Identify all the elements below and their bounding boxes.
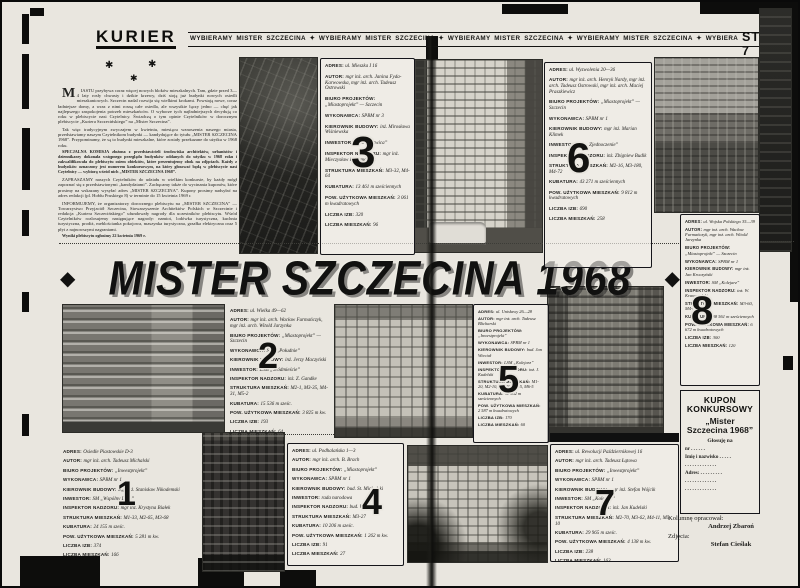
spec-value: ul. Wojska Polskiego 35—39 (703, 219, 755, 224)
photo-strip-right (759, 8, 792, 252)
spec-line: AUTOR: mgr inż. arch. Henryk Nardy, mgr … (549, 77, 647, 95)
spec-value: SPBM nr 1 (718, 259, 738, 264)
spec-line: AUTOR: mgr inż. arch. Tadeusz Łątowa (555, 458, 674, 465)
spec-value: mgr inż. arch. Tadeusz Łątowa (575, 459, 636, 464)
intro-paragraph: INFORMUJEMY, że organizatorzy dorocznego… (58, 201, 237, 232)
edge-mark (783, 356, 793, 370)
spec-label: LICZBA MIESZKAŃ: (549, 216, 597, 221)
spec-value: 13 461 m sześciennych (356, 185, 402, 190)
spec-label: POW. UŻYTKOWA MIESZKAŃ: (555, 539, 627, 544)
spec-label: WYKONAWCA: (685, 259, 718, 264)
spec-label: KIEROWNIK BUDOWY: (63, 487, 118, 492)
spec-label: INWESTOR: (685, 280, 712, 285)
spec-label: LICZBA MIESZKAŃ: (325, 222, 373, 227)
drop-cap: M (58, 88, 75, 99)
building-spec-block-6: 6 ADRES: ul. Wyzwolenia 20—36AUTOR: mgr … (544, 62, 652, 268)
spec-lines: ADRES: ul. Podhalańska 1—3AUTOR: mgr inż… (292, 448, 399, 558)
spec-value: ul. Mieszka I 16 (345, 64, 377, 69)
header-slogan: WYBIERAMY MISTER SZCZECINA ✦ WYBIERAMY M… (190, 35, 738, 45)
spec-value: 163 (603, 559, 611, 564)
spec-line: ADRES: ul. Wielka 49—62 (230, 308, 329, 315)
spec-line: LICZBA IZB: 690 (549, 206, 647, 213)
coupon-address-line: Adres: . . . . . . . . . (685, 471, 755, 476)
photo-building-5 (334, 304, 473, 438)
spec-value: 10 206 m sześc. (323, 524, 354, 529)
spec-value: SPBM nr 1 (510, 340, 530, 345)
spec-label: INSPEKTOR NADZORU: (63, 505, 121, 510)
spec-label: AUTOR: (549, 77, 569, 82)
spec-line: POW. UŻYTKOWA MIESZKAŃ: 5 281 m kw. (63, 534, 201, 541)
spec-line: WYKONAWCA: SPBM nr 1 (478, 340, 544, 345)
photo-building-8 (654, 57, 759, 213)
spec-label: LICZBA MIESZKAŃ: (478, 422, 521, 427)
coupon-name-line: Imię i nazwisko . . . . . (685, 455, 755, 460)
spec-label: INWESTOR: (555, 496, 584, 501)
spec-label: POW. UŻYTKOWA MIESZKAŃ: (63, 534, 135, 539)
spec-label: WYKONAWCA: (555, 477, 592, 482)
spec-value: 2 587 m kwadratowych (478, 408, 519, 413)
spec-value: rada narodowa (321, 496, 352, 501)
spec-line: ADRES: ul. Wyzwolenia 20—36 (549, 67, 647, 74)
spec-label: BIURO PROJEKTÓW: (555, 468, 607, 473)
edge-mark (22, 414, 29, 436)
spec-value: 374 (94, 544, 102, 549)
spec-value: Osiedle Piastowskie D-3 (83, 450, 132, 455)
spec-label: STRUKTURA MIESZKAŃ: (230, 385, 290, 390)
spec-label: BIURO PROJEKTÓW: (325, 96, 375, 101)
contest-number: 7 (595, 485, 615, 521)
spec-line: KUBATURA: 43 271 m sześciennych (549, 179, 647, 186)
edge-mark (22, 54, 29, 109)
spec-line: POW. UŻYTKOWA MIESZKAŃ: 9 812 m kwadrato… (549, 190, 647, 203)
contest-number: 5 (498, 361, 519, 399)
spec-line: KUBATURA: 15 536 m sześc. (230, 401, 329, 408)
spec-value: mgr inż. Stefan Wójcik (610, 488, 655, 493)
spec-label: POW. UŻYTKOWA MIESZKAŃ: (230, 410, 302, 415)
spec-label: LICZBA MIESZKAŃ: (63, 552, 111, 557)
spec-label: POW. UŻYTKOWA MIESZKAŃ: (325, 195, 397, 200)
spec-label: INSPEKTOR NADZORU: (230, 376, 288, 381)
spec-line: LICZBA MIESZKAŃ: 27 (292, 551, 399, 558)
spec-value: 38 561 m sześciennych (713, 314, 754, 319)
spec-value: 258 (597, 217, 605, 222)
spec-line: ADRES: ul. Wojska Polskiego 35—39 (685, 219, 755, 224)
spec-line: LICZBA IZB: 238 (555, 549, 674, 556)
spec-label: LICZBA IZB: (230, 419, 261, 424)
building-spec-block-4: 4 ADRES: ul. Podhalańska 1—3AUTOR: mgr i… (287, 443, 404, 566)
spec-lines: ADRES: ul. Wyzwolenia 20—36AUTOR: mgr in… (549, 67, 647, 223)
spec-value: mgr inż. arch. B. Brach (312, 458, 359, 463)
spec-label: LICZBA MIESZKAŃ: (292, 551, 340, 556)
spec-value: ul. Podhalańska 1—3 (312, 449, 355, 454)
spec-line: WYKONAWCA: SPB „Południe” (230, 348, 329, 355)
spec-line: LICZBA IZB: 320 (325, 212, 410, 219)
spec-line: LICZBA MIESZKAŃ: 166 (63, 552, 201, 559)
spec-label: LICZBA IZB: (292, 542, 323, 547)
spec-value: inż. Zbigniew Budik (607, 154, 647, 159)
spec-label: AUTOR: (63, 458, 83, 463)
coupon-number-line: nr . . . . . . (685, 447, 755, 452)
spec-label: ADRES: (230, 308, 250, 313)
spec-label: LICZBA IZB: (63, 543, 94, 548)
spec-label: LICZBA IZB: (555, 549, 586, 554)
spec-value: 5 281 m kw. (135, 535, 159, 540)
contest-number: 1 (117, 477, 136, 511)
spec-line: AUTOR: mgr inż. arch. Tadeusz Michalski (63, 458, 201, 465)
spec-label: ADRES: (292, 448, 312, 453)
spec-value: 300 (713, 335, 720, 340)
spec-line: WYKONAWCA: SPBM nr 1 (685, 259, 755, 264)
spec-value: 320 (356, 213, 364, 218)
spec-line: BIURO PROJEKTÓW: „Miastoprojekt” — Szcze… (685, 245, 755, 256)
spec-value: „Inwestprojekt” (115, 469, 148, 474)
spec-label: ADRES: (63, 449, 83, 454)
header-rule-top (188, 32, 789, 33)
spec-label: LICZBA IZB: (549, 206, 580, 211)
contest-number: 4 (362, 484, 382, 520)
spec-label: KIEROWNIK BUDOWY: (292, 486, 347, 491)
spec-line: LICZBA MIESZKAŃ: 60 (478, 422, 544, 427)
building-spec-block-1: 1 ADRES: Osiedle Piastowskie D-3AUTOR: m… (59, 445, 205, 566)
spec-value: inż. Z. Gandke (288, 377, 317, 382)
spec-value: „Miastoprojekt” — Szczecin (325, 103, 382, 108)
spec-line: BIURO PROJEKTÓW: „Miastoprojekt” — Szcze… (549, 99, 647, 112)
spec-label: ADRES: (549, 67, 569, 72)
spec-line: BIURO PROJEKTÓW: „Miastoprojekt” — Szcze… (325, 96, 410, 109)
spec-line: LICZBA MIESZKAŃ: 258 (549, 216, 647, 223)
spec-value: ul. Wyzwolenia 20—36 (569, 68, 615, 73)
spec-line: INWESTOR: SM „Zjednoczenie” (549, 142, 647, 149)
spec-line: LICZBA MIESZKAŃ: 96 (325, 222, 410, 229)
coupon-title: KUPON KONKURSOWY (685, 396, 755, 414)
spec-line: INSPEKTOR NADZORU: inż. Zbigniew Budik (549, 153, 647, 160)
spec-value: 64 (278, 430, 283, 435)
spec-line: INSPEKTOR NADZORU: inż. Z. Gandke (230, 376, 329, 383)
spec-label: KUBATURA: (230, 401, 261, 406)
spec-label: ADRES: (555, 449, 575, 454)
contest-coupon: KUPON KONKURSOWY „Mister Szczecina 1968”… (680, 390, 760, 514)
spec-label: STRUKTURA MIESZKAŃ: (292, 514, 352, 519)
credits-photo-label: Zdjęcia: (668, 533, 794, 540)
spec-line: BIURO PROJEKTÓW: „Inwestprojekt” (63, 468, 201, 475)
spec-value: ul. Rewolucji Październikowej 16 (575, 450, 642, 455)
spec-value: 1 262 m kw. (364, 534, 388, 539)
credits-photo-name: Stefan Cieślak (668, 541, 794, 548)
spec-line: AUTOR: mgr inż. arch. Wacław Furmańczyk,… (230, 317, 329, 330)
spec-value: „Inwestprojekt” (607, 469, 640, 474)
intro-paragraph: Wyniki plebiscytu ogłosimy 22 kwietnia 1… (58, 234, 237, 239)
edge-mark (22, 128, 30, 190)
spec-line: KUBATURA: 10 206 m sześc. (292, 523, 399, 530)
spec-value: „Miastoprojekt” (344, 468, 377, 473)
edge-mark (22, 14, 29, 44)
spec-label: WYKONAWCA: (63, 477, 100, 482)
spec-label: KUBATURA: (555, 530, 586, 535)
spec-value: „Miastoprojekt” — Szczecin (685, 251, 737, 256)
spec-label: WYKONAWCA: (478, 340, 510, 345)
spec-label: LICZBA IZB: (685, 335, 713, 340)
spec-label: BIURO PROJEKTÓW: (685, 245, 731, 250)
coupon-subtitle: „Mister Szczecina 1968” (685, 417, 755, 435)
spec-value: 60 (521, 422, 525, 427)
spec-value: SPBM nr 3 (362, 114, 384, 119)
spec-line: AUTOR: mgr inż. arch. Tadeusz Blicharski (478, 316, 544, 326)
photo-building-1 (202, 432, 285, 572)
spec-label: BIURO PROJEKTÓW: (292, 467, 344, 472)
credits: Kolumnę opracował: Andrzej Zbaroń Zdjęci… (668, 515, 794, 551)
spec-label: INWESTOR: (63, 496, 92, 501)
contest-number: 6 (567, 137, 590, 179)
coupon-dots: . . . . . . . . . . . . . (685, 487, 755, 492)
spec-value: 15 536 m sześc. (261, 402, 292, 407)
building-spec-block-7: 7 ADRES: ul. Rewolucji Październikowej 1… (550, 444, 679, 562)
spec-line: INWESTOR: SM „Kolejarz” (685, 280, 755, 285)
spec-label: LICZBA IZB: (325, 212, 356, 217)
intro-paragraph: MIASTU przybywa coraz więcej nowych blok… (58, 88, 237, 124)
spec-label: KUBATURA: (325, 184, 356, 189)
spec-line: STRUKTURA MIESZKAŃ: M3-27 (292, 514, 399, 521)
building-spec-block-8: 8 ADRES: ul. Wojska Polskiego 35—39AUTOR… (680, 214, 760, 386)
header-rule-bottom (188, 46, 789, 47)
spec-label: INWESTOR: (230, 367, 259, 372)
spec-label: KUBATURA: (292, 523, 323, 528)
star-ornament: ✱ (105, 60, 113, 71)
spec-label: AUTOR: (555, 458, 575, 463)
spec-line: BIURO PROJEKTÓW: „Miastoprojekt” (292, 467, 399, 474)
spec-line: LICZBA IZB: 300 (685, 335, 755, 340)
photo-building-3 (239, 57, 318, 254)
intro-paragraph: SPECJALNA KOMISJA złożona z przedstawici… (58, 150, 237, 175)
spec-label: KUBATURA: (63, 524, 94, 529)
edge-mark (502, 4, 568, 14)
intro-paragraph: Tak więc tradycyjnym zwyczajem w kwietni… (58, 127, 237, 148)
spec-label: LICZBA MIESZKAŃ: (555, 558, 603, 563)
car-in-photo (429, 222, 486, 245)
masthead-logo: KURIER (96, 28, 176, 49)
spec-line: KUBATURA: 24 155 m sześc. (63, 524, 201, 531)
spec-line: LICZBA IZB: 374 (63, 543, 201, 550)
spec-line: POW. UŻYTKOWA MIESZKAŃ: 1 262 m kw. (292, 533, 399, 540)
spec-line: STRUKTURA MIESZKAŃ: M2-16, M3-180, M4-72 (549, 163, 647, 176)
spec-value: ul. Wielka 49—62 (250, 309, 286, 314)
spec-label: AUTOR: (292, 457, 312, 462)
spec-line: LICZBA MIESZKAŃ: 163 (555, 558, 674, 565)
spec-line: POW. UŻYTKOWA MIESZKAŃ: 2 587 m kwadrato… (478, 403, 544, 413)
spec-label: AUTOR: (325, 74, 345, 79)
spec-line: LICZBA MIESZKAŃ: 120 (685, 343, 755, 348)
spec-value: 27 (340, 552, 345, 557)
building-spec-block-3: 3 ADRES: ul. Mieszka I 16AUTOR: mgr inż.… (320, 58, 415, 255)
photo-building-2 (62, 304, 225, 433)
spec-label: KIEROWNIK BUDOWY: (685, 266, 735, 271)
spec-label: LICZBA MIESZKAŃ: (230, 429, 278, 434)
spec-label: WYKONAWCA: (292, 476, 329, 481)
page-fold-gutter (426, 36, 437, 588)
spec-label: KIEROWNIK BUDOWY: (549, 126, 604, 131)
spec-line: POW. UŻYTKOWA MIESZKAŃ: 3 061 m kwadrato… (325, 195, 410, 208)
spec-line: POW. UŻYTKOWA MIESZKAŃ: 4 138 m kw. (555, 539, 674, 546)
spec-line: LICZBA MIESZKAŃ: 64 (230, 429, 329, 436)
black-bar (550, 433, 679, 442)
spec-line: ADRES: Osiedle Piastowskie D-3 (63, 449, 201, 456)
credits-column-label: Kolumnę opracował: (668, 515, 794, 522)
spec-label: STRUKTURA MIESZKAŃ: (63, 515, 123, 520)
diamond-icon: ◆ (665, 266, 680, 291)
spec-line: STRUKTURA MIESZKAŃ: M1-33, M2-65, M3-68 (63, 515, 201, 522)
spec-line: WYKONAWCA: SPBM nr 1 (292, 476, 399, 483)
spec-value: SPBM nr 1 (586, 117, 608, 122)
newspaper-page-spread: KURIER WYBIERAMY MISTER SZCZECINA ✦ WYBI… (0, 0, 800, 588)
spec-line: KUBATURA: 13 461 m sześciennych (325, 184, 410, 191)
spec-line: BIURO PROJEKTÓW: „Inwestprojekt” (555, 468, 674, 475)
star-ornament: ✱ (148, 59, 156, 70)
spec-value: 29 965 m sześc. (586, 531, 617, 536)
spec-line: POW. UŻYTKOWA MIESZKAŃ: 3 825 m kw. (230, 410, 329, 417)
spec-label: AUTOR: (685, 227, 704, 232)
spec-value: M1-33, M2-65, M3-68 (123, 516, 168, 521)
spec-line: INWESTOR: rada narodowa (292, 495, 399, 502)
intro-paragraph: ZAPRASZAMY naszych Czytelników do udział… (58, 177, 237, 198)
spec-line: KIEROWNIK BUDOWY: inż. Jerzy Maczyński (230, 357, 329, 364)
spec-line: KIEROWNIK BUDOWY: mgr inż. Jan Kroczyńsk… (685, 266, 755, 277)
spec-line: LICZBA IZB: 91 (292, 542, 399, 549)
spec-value: inż. Jan Kudelski (613, 506, 647, 511)
spec-value: 690 (580, 207, 588, 212)
spec-label: INWESTOR: (292, 495, 321, 500)
edge-mark (22, 210, 29, 236)
spec-value: inż. Jerzy Maczyński (285, 358, 326, 363)
spec-line: BIURO PROJEKTÓW: „Miastoprojekt” — Szcze… (230, 333, 329, 346)
spec-value: SM „Kolejarz” (712, 280, 740, 285)
spec-label: ADRES: (685, 219, 703, 224)
contest-number: 3 (351, 131, 375, 175)
spec-label: BIURO PROJEKTÓW: (63, 468, 115, 473)
spec-value: 24 155 m sześc. (94, 525, 125, 530)
spec-label: LICZBA MIESZKAŃ: (685, 343, 729, 348)
spec-line: KIEROWNIK BUDOWY: bud. Jan Wieciał (478, 347, 544, 357)
edge-mark (22, 292, 29, 312)
edge-mark (280, 570, 316, 588)
spec-line: ADRES: ul. Rewolucji Październikowej 16 (555, 449, 674, 456)
spec-value: 170 (505, 415, 512, 420)
spec-line: KIEROWNIK BUDOWY: bud. St. Michalski (292, 486, 399, 493)
spec-value: „Inwestprojekt” (478, 333, 507, 338)
spec-value: 238 (586, 550, 594, 555)
spec-label: WYKONAWCA: (549, 116, 586, 121)
spec-value: 3 825 m kw. (302, 411, 326, 416)
contest-number: 8 (691, 291, 713, 331)
coupon-vote-label: Głosuję na (685, 438, 755, 444)
spec-line: INWESTOR: LSM „Śródmieście” (230, 367, 329, 374)
spec-line: LICZBA IZB: 193 (230, 419, 329, 426)
coupon-dots: . . . . . . . . . . . . . (685, 479, 755, 484)
spec-line: AUTOR: mgr inż. arch. Janina Fyda-Karwow… (325, 74, 410, 92)
credits-column-name: Andrzej Zbaroń (668, 523, 794, 530)
contest-number: 2 (258, 338, 278, 374)
spec-value: 120 (729, 343, 736, 348)
spec-value: 91 (323, 543, 328, 548)
spec-line: BIURO PROJEKTÓW: „Inwestprojekt” (478, 328, 544, 338)
spec-label: ADRES: (478, 309, 496, 314)
building-spec-block-5: 5 ADRES: ul. Unisławy 26—28AUTOR: mgr in… (473, 304, 549, 443)
spec-line: WYKONAWCA: SPBM nr 3 (325, 113, 410, 120)
spec-line: STRUKTURA MIESZKAŃ: M2-1, M3-35, M4-31, … (230, 385, 329, 398)
spec-value: ul. Unisławy 26—28 (496, 309, 532, 314)
spec-label: INSPEKTOR NADZORU: (292, 504, 350, 509)
spec-value: 96 (373, 223, 378, 228)
spec-label: ADRES: (325, 63, 345, 68)
spec-line: KIEROWNIK BUDOWY: mgr inż. Marian Klimek (549, 126, 647, 139)
spec-line: INSPEKTOR NADZORU: bud. W. Kret (292, 504, 399, 511)
spec-value: SPBM nr 1 (329, 477, 351, 482)
star-ornament: ✱ (130, 73, 138, 84)
spec-line: ADRES: ul. Podhalańska 1—3 (292, 448, 399, 455)
spec-line: WYKONAWCA: SPBM nr 1 (549, 116, 647, 123)
spec-value: mgr inż. arch. Tadeusz Michalski (83, 459, 149, 464)
diamond-icon: ◆ (60, 266, 75, 291)
spec-line: KUBATURA: 29 965 m sześc. (555, 530, 674, 537)
spec-value: 166 (111, 553, 119, 558)
spec-line: AUTOR: mgr inż. arch. B. Brach (292, 457, 399, 464)
edge-mark (30, 8, 44, 16)
spec-value: 193 (261, 420, 269, 425)
spec-line: ADRES: ul. Mieszka I 16 (325, 63, 410, 70)
spec-line: ADRES: ul. Unisławy 26—28 (478, 309, 544, 314)
photo-building-tower (547, 286, 664, 442)
spec-line: AUTOR: mgr inż. arch. Wacław Furmańczyk,… (685, 227, 755, 243)
spec-line: LICZBA IZB: 170 (478, 415, 544, 420)
spec-label: BIURO PROJEKTÓW: (549, 99, 601, 104)
spec-label: POW. UŻYTKOWA MIESZKAŃ: (549, 190, 621, 195)
spec-label: POW. UŻYTKOWA MIESZKAŃ: (292, 533, 364, 538)
spec-label: AUTOR: (230, 317, 250, 322)
intro-article: MIASTU przybywa coraz więcej nowych blok… (58, 88, 237, 244)
spec-label: LICZBA IZB: (478, 415, 505, 420)
spec-value: 4 138 m kw. (627, 540, 651, 545)
dotted-rule (760, 241, 794, 242)
spec-label: WYKONAWCA: (325, 113, 362, 118)
coupon-dots: . . . . . . . . . . . . . (685, 463, 755, 468)
spec-lines: ADRES: ul. Wielka 49—62AUTOR: mgr inż. a… (230, 308, 329, 435)
building-spec-block-2: 2 ADRES: ul. Wielka 49—62AUTOR: mgr inż.… (226, 304, 333, 432)
